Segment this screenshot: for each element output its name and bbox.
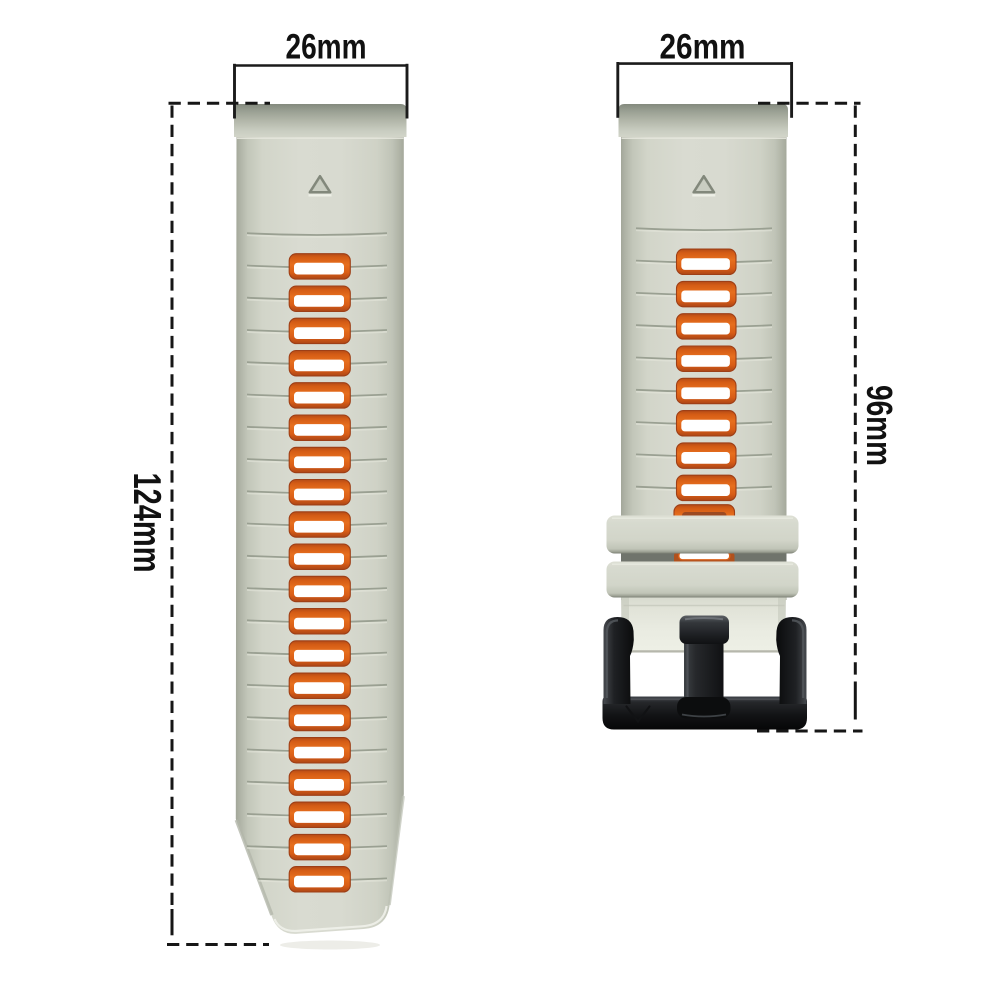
svg-text:96mm: 96mm [859,385,900,466]
svg-text:26mm: 26mm [660,27,746,66]
svg-text:26mm: 26mm [286,27,367,66]
svg-text:124mm: 124mm [125,473,168,573]
